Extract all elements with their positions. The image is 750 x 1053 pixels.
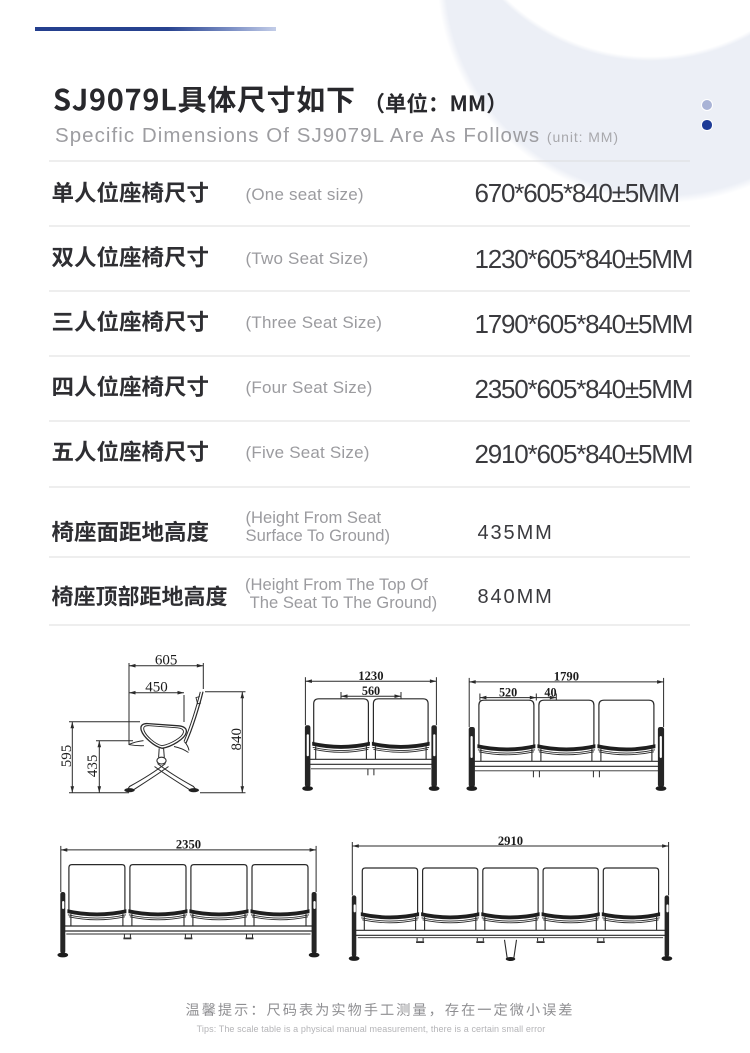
svg-text:450: 450 [145, 680, 168, 696]
svg-text:1230: 1230 [358, 669, 383, 683]
svg-text:605: 605 [155, 652, 178, 668]
svg-text:1790: 1790 [554, 670, 579, 684]
svg-text:2910: 2910 [498, 834, 523, 848]
svg-text:520: 520 [499, 685, 517, 699]
svg-text:840: 840 [229, 728, 245, 751]
svg-text:595: 595 [59, 745, 75, 768]
svg-text:40: 40 [544, 685, 556, 699]
svg-text:435: 435 [85, 755, 101, 778]
svg-text:2350: 2350 [176, 838, 201, 852]
svg-text:560: 560 [362, 684, 380, 698]
